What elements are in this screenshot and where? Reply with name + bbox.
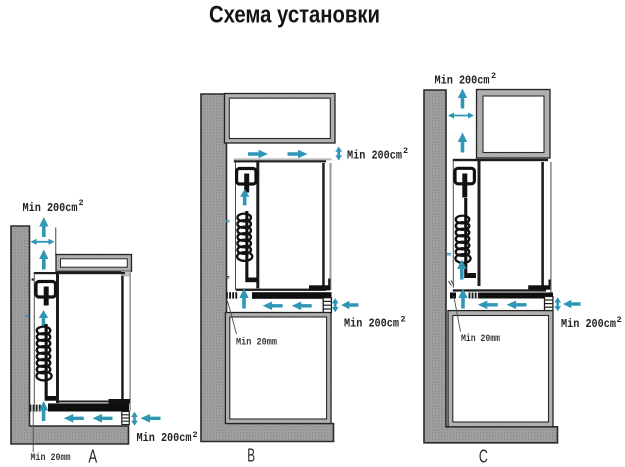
svg-text:2: 2 [403,146,408,156]
svg-text:Min 20mm: Min 20mm [236,337,277,349]
svg-text:Min 200cm: Min 200cm [23,201,78,215]
svg-text:Схема установки: Схема установки [209,1,380,28]
svg-text:2: 2 [79,198,84,208]
svg-text:2: 2 [401,315,406,325]
svg-text:C: C [479,446,488,466]
svg-text:B: B [247,446,255,466]
svg-text:Min 200cm: Min 200cm [347,149,402,163]
svg-text:Min 200cm: Min 200cm [435,74,490,88]
svg-text:2: 2 [617,315,622,325]
svg-text:Min 20mm: Min 20mm [31,452,71,464]
svg-text:Min 20mm: Min 20mm [461,333,500,345]
svg-text:Min 200cm: Min 200cm [137,431,192,445]
svg-text:Min 200cm: Min 200cm [344,317,399,331]
svg-text:A: A [88,447,97,467]
svg-text:Min 200cm: Min 200cm [561,317,616,331]
svg-text:2: 2 [491,71,496,81]
svg-text:2: 2 [193,430,198,440]
